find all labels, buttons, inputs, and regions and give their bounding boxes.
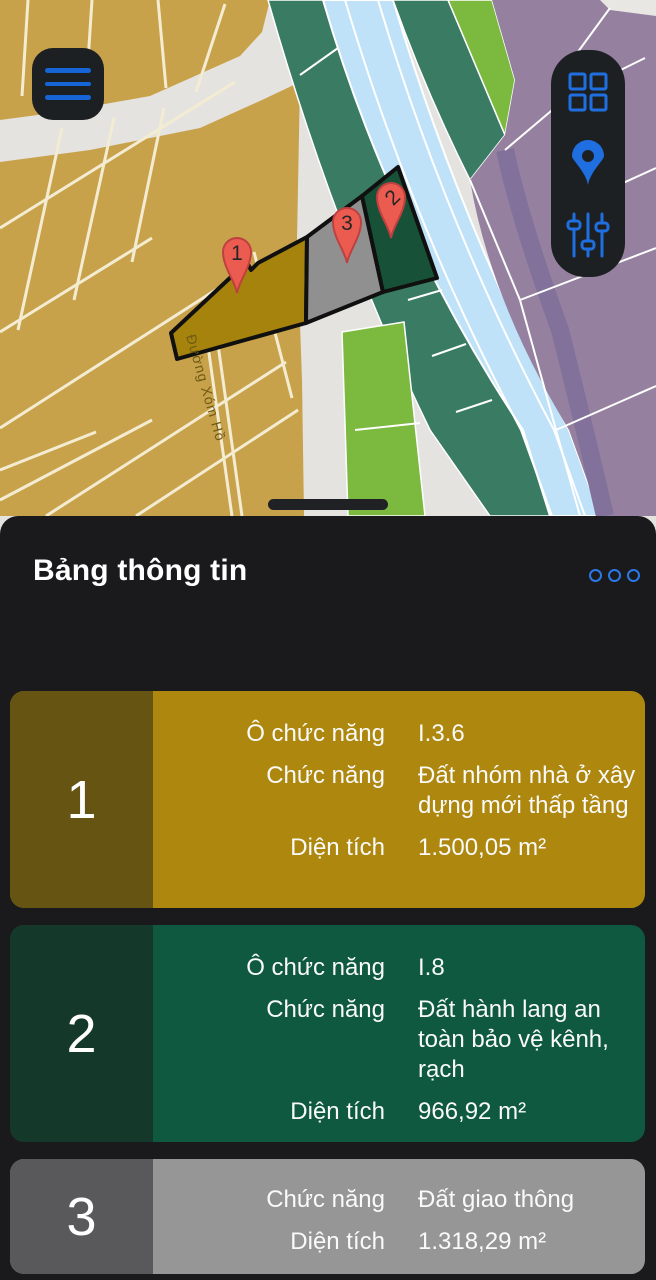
info-row: Chức năngĐất nhóm nhà ở xây dựng mới thấ… [153,761,645,821]
sheet-title: Bảng thông tin [33,554,247,588]
field-label: Diện tích [153,1097,385,1127]
parcel-number: 1 [66,773,96,827]
field-value: 966,92 m² [418,1097,640,1127]
svg-text:3: 3 [341,212,353,235]
hamburger-menu-button[interactable] [32,48,104,120]
info-row: Ô chức năngI.8 [153,953,645,983]
field-label: Diện tích [153,833,385,863]
hamburger-icon [45,68,91,73]
dot-icon [608,569,621,582]
locate-me-button[interactable] [558,131,618,195]
parcel-card[interactable]: 3 Chức năngĐất giao thôngDiện tích1.318,… [10,1159,645,1274]
grid-view-button[interactable] [558,60,618,124]
field-value: Đất hành lang an toàn bảo vệ kênh, rạch [418,995,640,1085]
parcel-number: 2 [66,1007,96,1061]
info-row: Diện tích966,92 m² [153,1097,645,1127]
dot-icon [627,569,640,582]
field-label: Chức năng [153,1185,385,1215]
grid-icon [566,70,610,114]
info-row: Ô chức năngI.3.6 [153,719,645,749]
field-value: Đất nhóm nhà ở xây dựng mới thấp tầng [418,761,640,821]
more-options-button[interactable] [585,565,644,586]
parcel-card[interactable]: 1 Ô chức năngI.3.6Chức năngĐất nhóm nhà … [10,691,645,908]
svg-text:1: 1 [231,242,243,265]
parcel-card-body: Ô chức năngI.3.6Chức năngĐất nhóm nhà ở … [153,691,645,908]
app-screen: Đường Xóm Hồ 1 3 2 [0,0,656,1280]
field-value: I.3.6 [418,719,640,749]
parcel-card-band: 1 [10,691,153,908]
info-row: Diện tích1.500,05 m² [153,833,645,863]
map-tools-panel [551,50,625,277]
field-label: Chức năng [153,995,385,1025]
parcel-number: 3 [66,1190,96,1244]
info-sheet: Bảng thông tin 1 Ô chức năngI.3.6Chức nă… [0,516,656,1280]
parcel-card[interactable]: 2 Ô chức năngI.8Chức năngĐất hành lang a… [10,925,645,1142]
parcel-card-band: 2 [10,925,153,1142]
info-row: Chức năngĐất giao thông [153,1185,645,1215]
field-value: I.8 [418,953,640,983]
field-label: Diện tích [153,1227,385,1257]
dot-icon [589,569,602,582]
parcel-card-body: Ô chức năngI.8Chức năngĐất hành lang an … [153,925,645,1142]
sliders-icon [564,211,612,259]
info-row: Chức năngĐất hành lang an toàn bảo vệ kê… [153,995,645,1085]
field-value: 1.500,05 m² [418,833,640,863]
field-value: 1.318,29 m² [418,1227,640,1257]
field-label: Ô chức năng [153,953,385,983]
filters-button[interactable] [558,203,618,267]
parcel-card-body: Chức năngĐất giao thôngDiện tích1.318,29… [153,1159,645,1274]
field-value: Đất giao thông [418,1185,640,1215]
location-pin-icon [571,140,605,186]
info-row: Diện tích1.318,29 m² [153,1227,645,1257]
sheet-drag-handle[interactable] [268,499,388,510]
field-label: Chức năng [153,761,385,791]
parcel-card-band: 3 [10,1159,153,1274]
field-label: Ô chức năng [153,719,385,749]
